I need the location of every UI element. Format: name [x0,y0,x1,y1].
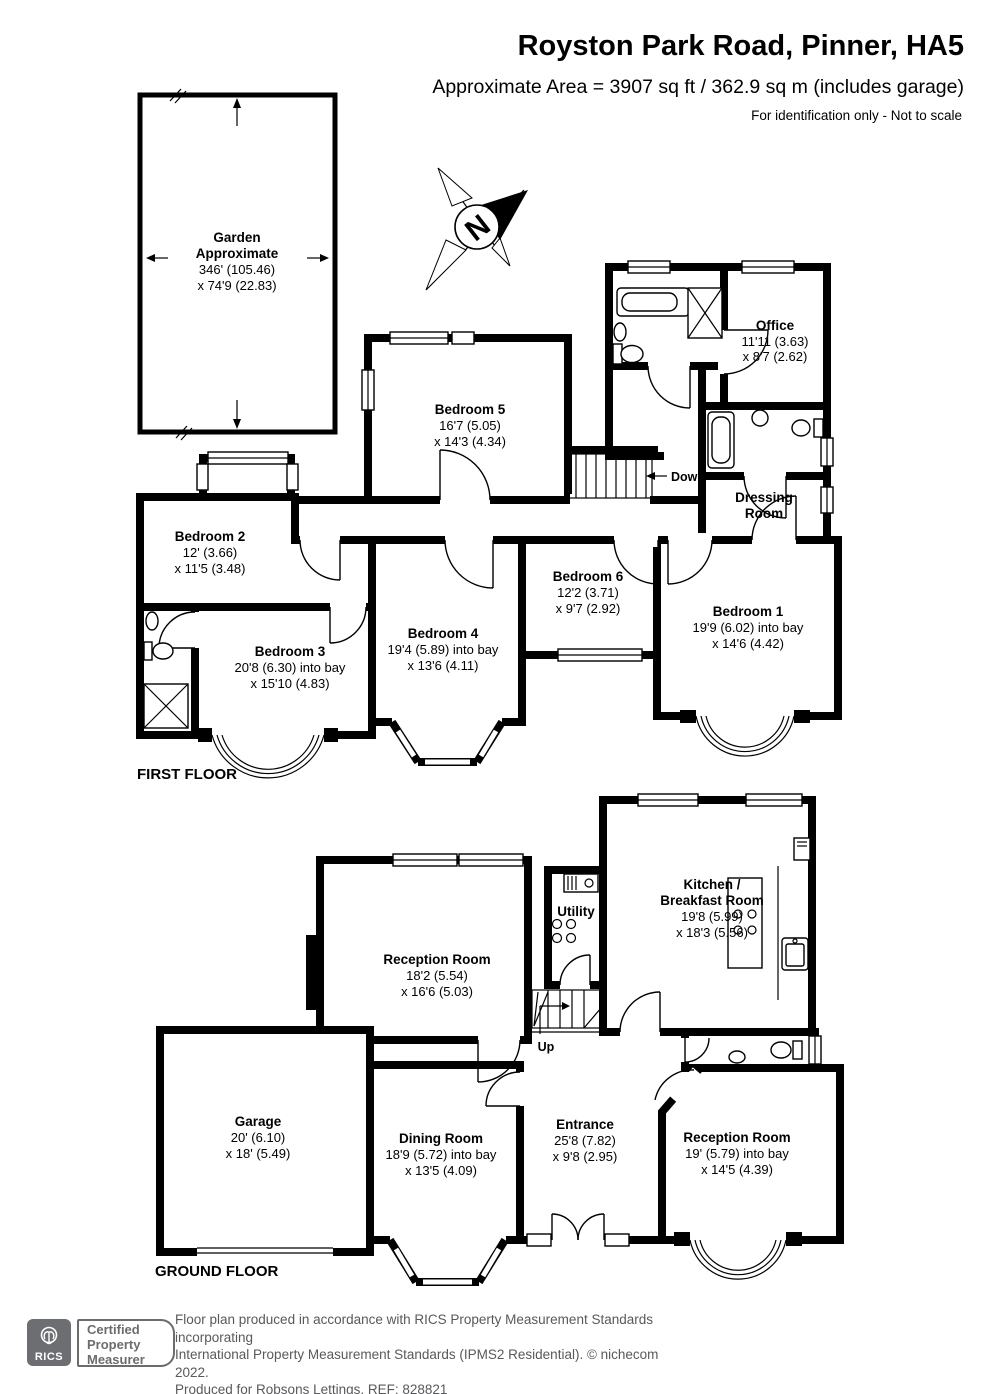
bedroom4-label: Bedroom 4 [408,626,479,641]
garden-dim-1: 346' (105.46) [199,262,275,277]
rics-lyre-icon [36,1325,62,1351]
badge-line-2: Property [87,1337,173,1352]
garden-dim-2: x 74'9 (22.83) [197,278,276,293]
floorplan-page: Royston Park Road, Pinner, HA5 Approxima… [0,0,986,1394]
reception-bottom-dim2: x 14'5 (4.39) [701,1162,773,1177]
bedroom2-dim2: x 11'5 (3.48) [175,561,246,576]
ground-floor-label: GROUND FLOOR [155,1263,278,1280]
bedroom5-dim2: x 14'3 (4.34) [434,434,506,449]
footer-disclaimer: Floor plan produced in accordance with R… [175,1311,695,1394]
sink-icon [614,323,626,341]
toilet-icon [792,419,823,437]
bedroom3-dim2: x 15'10 (4.83) [250,676,329,691]
sink-icon [752,410,768,426]
garden-label: Garden [213,230,260,245]
shower-icon [688,288,722,338]
office-dim2: x 8'7 (2.62) [743,349,808,364]
reception-bottom-dim1: 19' (5.79) into bay [685,1146,789,1161]
reception-top-dim2: x 16'6 (5.03) [401,984,473,999]
footer-line-1: Floor plan produced in accordance with R… [175,1311,695,1346]
entrance-dim2: x 9'8 (2.95) [553,1149,618,1164]
bedroom1-bay-window [680,710,810,756]
garage-door [197,1246,333,1258]
reception-bottom-label: Reception Room [683,1130,790,1145]
appliance-icon [794,838,810,860]
bedroom3-label: Bedroom 3 [255,644,326,659]
room-reception-top [320,860,528,1040]
bedroom2-dim1: 12' (3.66) [183,545,238,560]
reception-top-dim1: 18'2 (5.54) [406,968,468,983]
bedroom1-dim2: x 14'6 (4.42) [712,636,784,651]
footer-line-2: International Property Measurement Stand… [175,1346,695,1381]
reception-bottom-bay-window [674,1232,802,1279]
sink-icon [146,612,158,630]
north-compass-icon: N [426,168,528,290]
dining-dim2: x 13'5 (4.09) [405,1163,477,1178]
floorplan-drawing: Garden Approximate 346' (105.46) x 74'9 … [0,0,986,1394]
kitchen-label-2: Breakfast Room [660,893,764,908]
badge-line-1: Certified [87,1322,173,1337]
garage-dim2: x 18' (5.49) [226,1146,291,1161]
kitchen-dim1: 19'8 (5.99) [681,909,743,924]
hall-first-floor [609,366,702,456]
bedroom5-label: Bedroom 5 [435,402,506,417]
bedroom6-label: Bedroom 6 [553,569,624,584]
bedroom5-dim1: 16'7 (5.05) [439,418,501,433]
bedroom6-dim2: x 9'7 (2.92) [556,601,621,616]
badge-line-3: Measurer [87,1352,173,1367]
office-label: Office [756,318,795,333]
bedroom4-dim1: 19'4 (5.89) into bay [388,642,499,657]
rics-wordmark: RICS [35,1351,63,1363]
sink-icon [564,874,598,892]
bedroom1-label: Bedroom 1 [713,604,784,619]
down-arrow [646,472,655,480]
dining-label: Dining Room [399,1131,483,1146]
toilet-icon [144,642,173,660]
bedroom2-label: Bedroom 2 [175,529,246,544]
bedroom3-dim1: 20'8 (6.30) into bay [235,660,346,675]
toilet-icon [613,344,643,364]
stairs-up-label: Up [538,1040,555,1054]
dining-dim1: 18'9 (5.72) into bay [386,1147,497,1162]
bath-icon [617,288,689,316]
bedroom4-dim2: x 13'6 (4.11) [408,658,479,673]
dressing-label-1: Dressing [735,490,793,505]
garden-label-2: Approximate [196,246,279,261]
rics-logo: RICS [27,1319,71,1366]
bath-icon [708,412,734,468]
sink-icon [782,938,808,970]
first-floor-label: FIRST FLOOR [137,766,237,783]
garage-dim1: 20' (6.10) [231,1130,286,1145]
shower-icon [144,684,188,728]
dining-bay-window [390,1234,506,1282]
chimney-breast [306,935,322,1010]
entrance-label: Entrance [556,1117,614,1132]
reception-top-label: Reception Room [383,952,490,967]
entrance-dim1: 25'8 (7.82) [554,1133,616,1148]
toilet-icon [771,1041,802,1059]
dressing-label-2: Room [745,506,783,521]
certified-measurer-badge: Certified Property Measurer [77,1319,175,1367]
bedroom4-bay-window [392,716,502,762]
ground-floor-plan: Up [155,794,840,1282]
bedroom6-dim1: 12'2 (3.71) [557,585,619,600]
kitchen-dim2: x 18'3 (5.56) [676,925,748,940]
bedroom1-dim1: 19'9 (6.02) into bay [693,620,804,635]
utility-label: Utility [557,904,595,919]
sink-icon [729,1051,745,1063]
garden-plot: Garden Approximate 346' (105.46) x 74'9 … [140,89,335,440]
stairs-down-label: Down [671,470,705,484]
stairs-up: Up [532,990,602,1054]
kitchen-label-1: Kitchen / [683,877,740,892]
garage-label: Garage [235,1114,282,1129]
office-dim1: 11'11 (3.63) [741,334,808,349]
up-arrow [562,1002,570,1010]
footer-line-3: Produced for Robsons Lettings. REF: 8288… [175,1381,695,1394]
